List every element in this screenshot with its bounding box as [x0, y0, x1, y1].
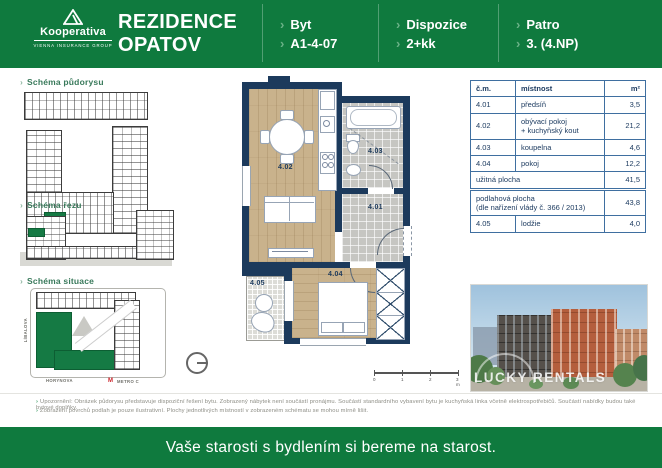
header-divider	[498, 4, 499, 62]
schema-rezu-label: ›Schéma řezu	[20, 200, 82, 210]
project-title-line2: OPATOV	[118, 34, 237, 57]
wall-left-upper	[242, 82, 249, 166]
footer-banner: Vaše starosti s bydlením si bereme na st…	[0, 427, 662, 468]
table-summary-row: užitná plocha 41,5	[471, 172, 646, 189]
kooperativa-triangle-icon	[63, 9, 83, 25]
chevron-icon: ›	[516, 17, 520, 32]
building-render-photo: LUCKY RENTALS	[470, 284, 648, 392]
byt-value: A1-4-07	[290, 36, 337, 51]
disclaimer-line2: ›Zobrazení povrchů podlah je pouze ilust…	[36, 408, 636, 414]
logo-brand-text: Kooperativa	[32, 26, 114, 38]
chevron-icon: ›	[516, 36, 520, 51]
tree	[633, 355, 648, 381]
wardrobe-door	[377, 269, 404, 293]
sink-basin	[323, 120, 330, 127]
wardrobe-door	[377, 316, 404, 339]
site-bottom-building-green	[54, 350, 116, 370]
metro-logo-icon: M	[108, 378, 113, 384]
chevron-icon: ›	[20, 276, 23, 286]
dining-chair	[280, 110, 294, 120]
separator-line	[0, 393, 662, 394]
header-section-byt: ›Byt ›A1-4-07	[280, 15, 337, 53]
chevron-icon: ›	[20, 77, 23, 87]
highlighted-unit-section	[28, 228, 45, 237]
project-title: REZIDENCE OPATOV	[118, 11, 237, 57]
room-area-table: č.m. místnost m² 4.01 předsíň 3,5 4.02 o…	[470, 80, 646, 233]
byt-label: Byt	[290, 17, 311, 32]
floor-plan: 4.02 4.03 4.01 4.04 4.05	[238, 76, 414, 354]
section-right-tower	[136, 210, 174, 260]
logo-rule	[34, 40, 112, 41]
burner	[322, 154, 328, 160]
dining-table	[269, 119, 305, 155]
project-title-line1: REZIDENCE	[118, 11, 237, 34]
logo-subbrand-text: VIENNA INSURANCE GROUP	[32, 43, 114, 48]
loggia-chair	[255, 294, 273, 312]
col-header-mistnost: místnost	[516, 81, 605, 97]
col-header-cm: č.m.	[471, 81, 516, 97]
scale-tick-label: 3 m	[456, 377, 460, 387]
wardrobe-door	[377, 293, 404, 317]
bathtub-inner	[350, 109, 397, 126]
fridge	[320, 91, 335, 110]
street-label-horynova: HORYNOVA	[46, 378, 73, 383]
schematic-left-wing	[26, 130, 62, 200]
sofa-divider	[289, 196, 290, 221]
chevron-icon: ›	[396, 17, 400, 32]
dining-chair	[260, 130, 270, 144]
dispozice-label: Dispozice	[406, 17, 467, 32]
table-summary-row: podlahová plocha(dle nařízení vlády č. 3…	[471, 189, 646, 216]
wall-top-right	[342, 96, 410, 103]
flyer-page: Kooperativa VIENNA INSURANCE GROUP REZID…	[0, 0, 662, 468]
table-row: 4.02 obývací pokoj+ kuchyňský kout 21,2	[471, 113, 646, 139]
schema-situace-label: ›Schéma situace	[20, 276, 94, 286]
chevron-icon: ›	[280, 17, 284, 32]
chevron-icon: ›	[20, 200, 23, 210]
dispozice-value: 2+kk	[406, 36, 435, 51]
burner	[322, 162, 328, 168]
scale-tick-label: 2	[429, 377, 432, 382]
tv-bench	[268, 248, 314, 258]
scale-tick-label: 1	[401, 377, 404, 382]
burner	[328, 162, 334, 168]
dining-chair	[280, 154, 294, 164]
chevron-icon: ›	[36, 408, 38, 414]
patro-label: Patro	[526, 17, 559, 32]
header-section-dispozice: ›Dispozice ›2+kk	[396, 15, 467, 53]
wardrobe	[376, 268, 405, 340]
schematic-top-wing	[24, 92, 148, 120]
tv	[272, 251, 308, 252]
dining-chair	[304, 130, 314, 144]
watermark-text: LUCKY RENTALS	[474, 370, 606, 385]
table-row: 4.01 předsíň 3,5	[471, 97, 646, 113]
room-label-hall: 4.01	[368, 204, 383, 211]
table-row: 4.03 koupelna 4,6	[471, 139, 646, 155]
kooperativa-logo: Kooperativa VIENNA INSURANCE GROUP	[32, 9, 114, 48]
metro-label: METRO C	[117, 379, 139, 384]
pillow	[343, 322, 365, 333]
bedroom-window	[300, 338, 366, 346]
loggia-door-window	[284, 281, 294, 321]
burner	[328, 154, 334, 160]
north-arrow-icon	[186, 352, 208, 374]
table-row: 4.04 pokoj 12,2	[471, 155, 646, 171]
wall-loggia-top	[242, 262, 284, 276]
table-header-row: č.m. místnost m²	[471, 81, 646, 97]
footer-slogan: Vaše starosti s bydlením si bereme na st…	[0, 427, 662, 468]
entrance-door-opening	[403, 226, 412, 256]
wall-top-living	[242, 82, 342, 89]
room-label-bathroom: 4.03	[368, 148, 383, 155]
washbasin	[346, 164, 361, 176]
room-label-loggia: 4.05	[250, 280, 265, 287]
room-label-living: 4.02	[278, 164, 293, 171]
living-window	[242, 166, 251, 206]
patro-value: 3. (4.NP)	[526, 36, 578, 51]
schema-pudorysu-label: ›Schéma půdorysu	[20, 77, 104, 87]
header-section-patro: ›Patro ›3. (4.NP)	[516, 15, 578, 53]
room-label-bedroom: 4.04	[328, 271, 343, 278]
scale-tick-label: 0	[373, 377, 376, 382]
header-banner: Kooperativa VIENNA INSURANCE GROUP REZID…	[0, 0, 662, 68]
chevron-icon: ›	[280, 36, 284, 51]
col-header-m2: m²	[605, 81, 646, 97]
header-divider	[262, 4, 263, 62]
table-row: 4.05 lodžie 4,0	[471, 216, 646, 232]
header-divider	[378, 4, 379, 62]
wall-right-upper	[403, 96, 410, 226]
pillow	[321, 322, 343, 333]
chevron-icon: ›	[396, 36, 400, 51]
street-label-libalova: LÍBALOVA	[23, 318, 28, 342]
